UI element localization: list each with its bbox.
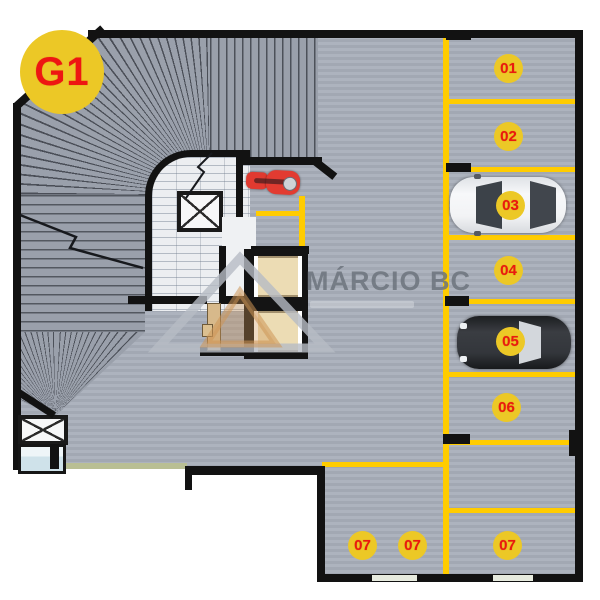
spot-badge-03: 03 [496,191,525,220]
moto-spot-line-v [299,196,305,250]
pillar-top [446,32,471,40]
divider-05-06 [449,372,575,377]
divider-07 [449,508,575,513]
spot-badge-07b: 07 [398,531,427,560]
garage-floor-plan: MÁRCIO BC G1 01 02 03 04 05 06 07 07 07 [0,0,600,600]
bottom-wall-opening-left [372,575,417,581]
moto-spot-line-h [256,211,302,216]
pillar-04-05 [445,296,469,306]
wall-notch-vertical [317,470,325,580]
elevator-shaft-1 [244,249,308,304]
watermark-brand: MÁRCIO BC [306,266,471,297]
wall-bottom [317,574,583,582]
bottom-wall-opening-right [493,575,533,581]
pillar-06-07 [443,434,470,444]
spot-badge-07a: 07 [348,531,377,560]
spot-badge-06: 06 [492,393,521,422]
elevator-cab-2-icon [254,311,302,352]
door-detail [202,324,213,337]
ramp-left-section [17,195,145,332]
wall-stub-bottom-left [50,444,59,469]
core-bottom-wall-b [219,296,247,304]
pillar-02-03 [446,163,471,172]
core-bottom-wall-a [145,296,207,304]
landscape-edge [57,463,187,469]
spot-badge-05: 05 [496,327,525,356]
vent-shaft-x-icon [18,415,68,445]
divider-01-02 [449,99,575,104]
elevator-shaft-2 [244,304,308,359]
wall-right [575,30,583,582]
divider-03-04 [449,235,575,240]
watermark-subtitle [310,301,414,308]
spot-badge-04: 04 [494,256,523,285]
wall-notch-horizontal [185,466,325,475]
level-badge: G1 [20,30,104,114]
pillar-right-wall [569,430,577,456]
red-motorcycle-icon [245,168,302,198]
spot-badge-01: 01 [494,54,523,83]
stair-void-x-icon [177,191,223,232]
core-bottom-stub [128,296,145,304]
ramp-top-section [210,36,318,158]
spot-badge-07c: 07 [493,531,522,560]
spot-badge-02: 02 [494,122,523,151]
wall-notch-stub [185,466,192,490]
elevator-cab-1-icon [254,256,302,297]
bottom-area-line [322,462,449,467]
wall-top [88,30,583,38]
moto-niche-wall [243,157,322,165]
